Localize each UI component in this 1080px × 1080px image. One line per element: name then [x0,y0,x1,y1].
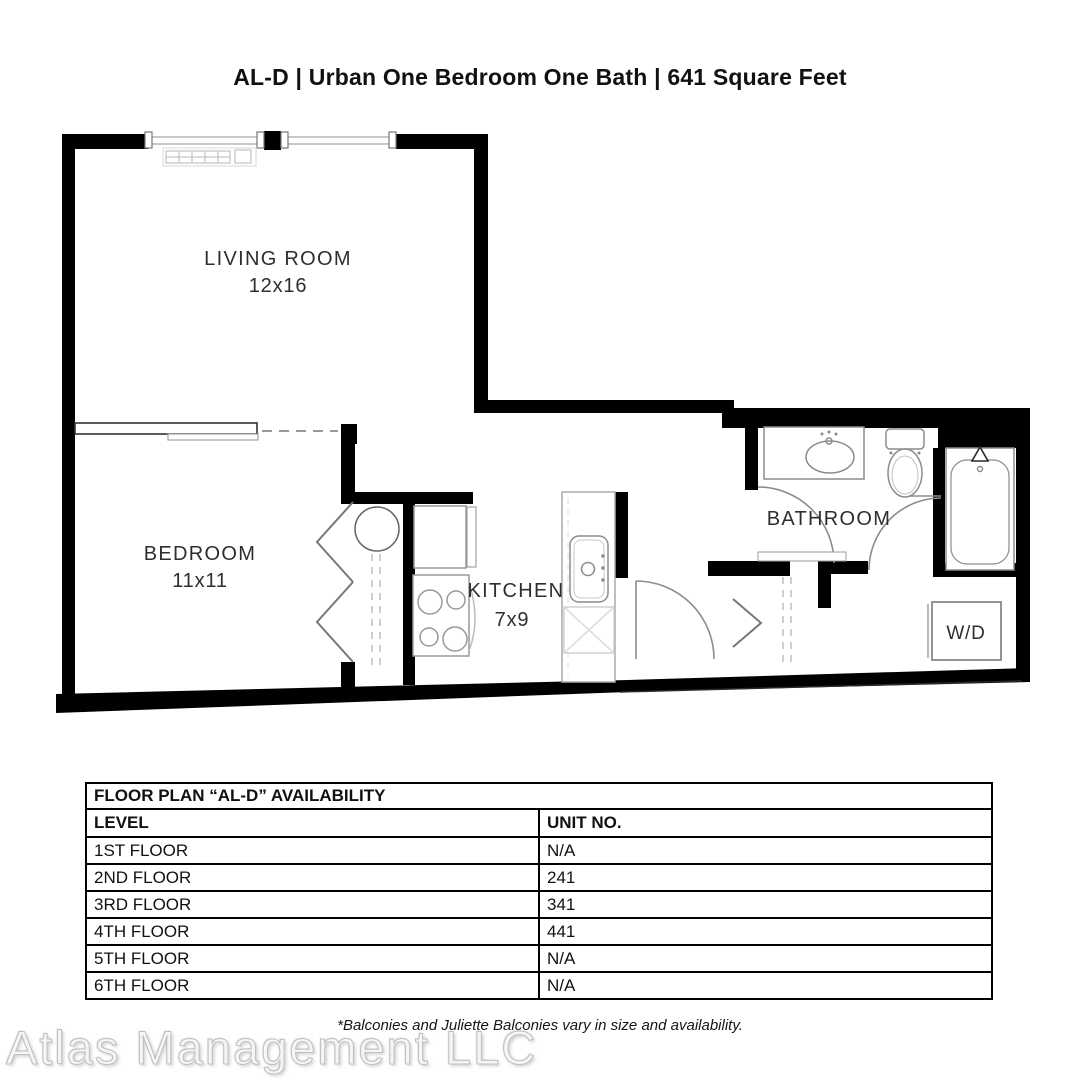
table-row: 5TH FLOOR N/A [86,945,992,972]
unit-cell: 341 [539,891,992,918]
wall-bottom-slanted [56,668,1030,713]
entry-closet-track [783,577,791,665]
bedroom-sliding-door [75,423,338,440]
wall-kitchen-east [615,492,628,578]
closet-shelving-track [372,554,380,666]
hall-door [636,581,714,659]
availability-table: FLOOR PLAN “AL-D” AVAILABILITY LEVEL UNI… [85,782,993,1000]
unit-cell: N/A [539,945,992,972]
table-row: 2ND FLOOR 241 [86,864,992,891]
level-cell: 2ND FLOOR [86,864,539,891]
bathroom-label: BATHROOM [767,508,891,530]
wall-entry-closet-horiz [818,561,868,574]
unit-cell: N/A [539,972,992,999]
dishwasher-icon [564,607,614,653]
table-row: 3RD FLOOR 341 [86,891,992,918]
table-title-row: FLOOR PLAN “AL-D” AVAILABILITY [86,783,992,809]
bathtub-icon [946,447,1014,570]
toilet-icon [886,429,924,497]
unit-cell: N/A [539,837,992,864]
table-row: 4TH FLOOR 441 [86,918,992,945]
kitchen-dims: 7x9 [495,609,530,631]
unit-cell: 241 [539,864,992,891]
wd-label: W/D [946,623,985,644]
wall-livingroom-right [474,134,488,406]
living-room-label: LIVING ROOM [204,248,352,270]
wall-closet-top [341,492,473,504]
level-cell: 6TH FLOOR [86,972,539,999]
wall-tub-left [933,448,945,575]
water-heater-icon [355,507,399,551]
bedroom-closet-bifold-icon [317,502,353,662]
living-room-dims: 12x16 [249,275,308,297]
vanity-sink-icon [764,427,864,479]
entry-closet-bifold-icon [733,599,761,647]
bedroom-dims: 11x11 [172,570,228,592]
kitchen-sink-icon [570,536,608,602]
wall-bedroom-east-upper [341,444,355,500]
level-column-header: LEVEL [86,809,539,837]
level-cell: 3RD FLOOR [86,891,539,918]
stove-icon [413,575,475,656]
company-watermark: Atlas Management LLC [6,1020,537,1075]
floor-plan-flyer: AL-D | Urban One Bedroom One Bath | 641 … [0,0,1080,1080]
wall-bathroom-west [745,428,758,490]
unit-column-header: UNIT NO. [539,809,992,837]
wall-top-left-seg [62,134,148,149]
hvac-unit-icon [163,148,256,166]
table-header-row: LEVEL UNIT NO. [86,809,992,837]
unit-cell: 441 [539,918,992,945]
wall-divider-post [341,424,357,444]
wall-right [1016,428,1030,673]
table-title: FLOOR PLAN “AL-D” AVAILABILITY [86,783,992,809]
walls [56,131,1030,713]
wall-window-post [264,131,281,150]
table-row: 6TH FLOOR N/A [86,972,992,999]
level-cell: 5TH FLOOR [86,945,539,972]
level-cell: 4TH FLOOR [86,918,539,945]
table-row: 1ST FLOOR N/A [86,837,992,864]
wall-left [62,134,75,700]
level-cell: 1ST FLOOR [86,837,539,864]
wall-hall-fragment [708,561,790,576]
bedroom-label: BEDROOM [144,543,256,565]
wall-bedroom-east-lower [341,662,355,694]
wall-south-livingroom [474,400,734,413]
kitchen-label: KITCHEN [468,580,565,602]
fridge-icon [414,506,476,568]
